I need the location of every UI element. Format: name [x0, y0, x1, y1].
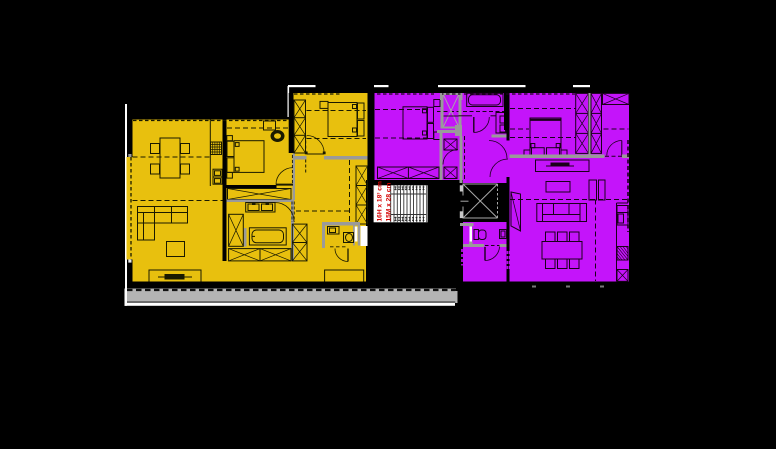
- svg-text:16H x 18³ cm: 16H x 18³ cm: [376, 181, 383, 221]
- svg-text:15M x 28 cm: 15M x 28 cm: [385, 183, 392, 222]
